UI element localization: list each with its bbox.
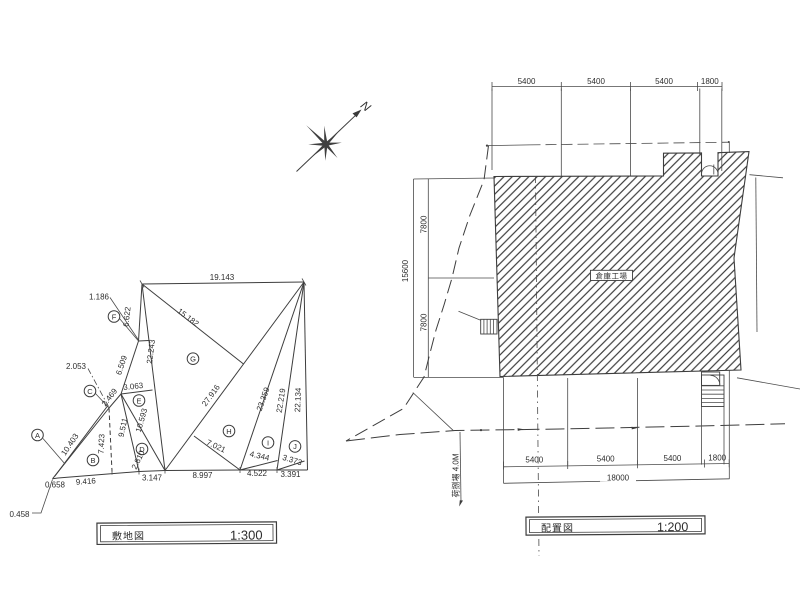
svg-text:5400: 5400 <box>518 77 536 86</box>
svg-text:5400: 5400 <box>597 455 615 464</box>
svg-text:9.416: 9.416 <box>76 476 97 486</box>
svg-text:18000: 18000 <box>607 474 630 483</box>
svg-text:1.186: 1.186 <box>89 293 110 302</box>
svg-text:F: F <box>112 312 117 321</box>
svg-text:0.658: 0.658 <box>45 481 66 490</box>
svg-text:7800: 7800 <box>420 215 429 233</box>
svg-text:5400: 5400 <box>664 454 682 463</box>
svg-text:J: J <box>293 442 297 451</box>
svg-text:4.522: 4.522 <box>247 469 268 478</box>
svg-text:3.147: 3.147 <box>142 474 163 483</box>
svg-text:倉庫工場: 倉庫工場 <box>596 270 628 280</box>
svg-text:22.134: 22.134 <box>293 387 303 412</box>
svg-text:荷捌場 4.0M: 荷捌場 4.0M <box>451 453 461 497</box>
svg-text:配置図: 配置図 <box>541 522 574 534</box>
svg-text:1:200: 1:200 <box>657 520 688 534</box>
svg-text:5400: 5400 <box>525 456 543 465</box>
svg-text:7.423: 7.423 <box>96 433 106 454</box>
svg-text:H: H <box>226 427 231 436</box>
svg-text:2.053: 2.053 <box>66 362 87 371</box>
svg-text:5400: 5400 <box>655 77 673 86</box>
svg-text:15600: 15600 <box>401 259 410 282</box>
svg-text:A: A <box>35 431 40 440</box>
svg-text:敷地図: 敷地図 <box>112 529 145 542</box>
svg-text:7800: 7800 <box>420 313 429 331</box>
svg-text:1:300: 1:300 <box>230 527 263 542</box>
svg-text:G: G <box>190 355 196 364</box>
svg-text:B: B <box>90 456 95 465</box>
svg-text:I: I <box>267 438 269 447</box>
svg-text:0.458: 0.458 <box>9 510 30 519</box>
svg-text:5400: 5400 <box>587 77 605 86</box>
svg-text:E: E <box>136 396 141 405</box>
svg-text:3.391: 3.391 <box>280 470 301 479</box>
svg-text:1800: 1800 <box>708 453 726 462</box>
svg-text:1800: 1800 <box>701 77 719 86</box>
svg-text:8.997: 8.997 <box>192 471 213 480</box>
svg-text:C: C <box>87 387 93 396</box>
svg-text:19.143: 19.143 <box>210 273 235 282</box>
